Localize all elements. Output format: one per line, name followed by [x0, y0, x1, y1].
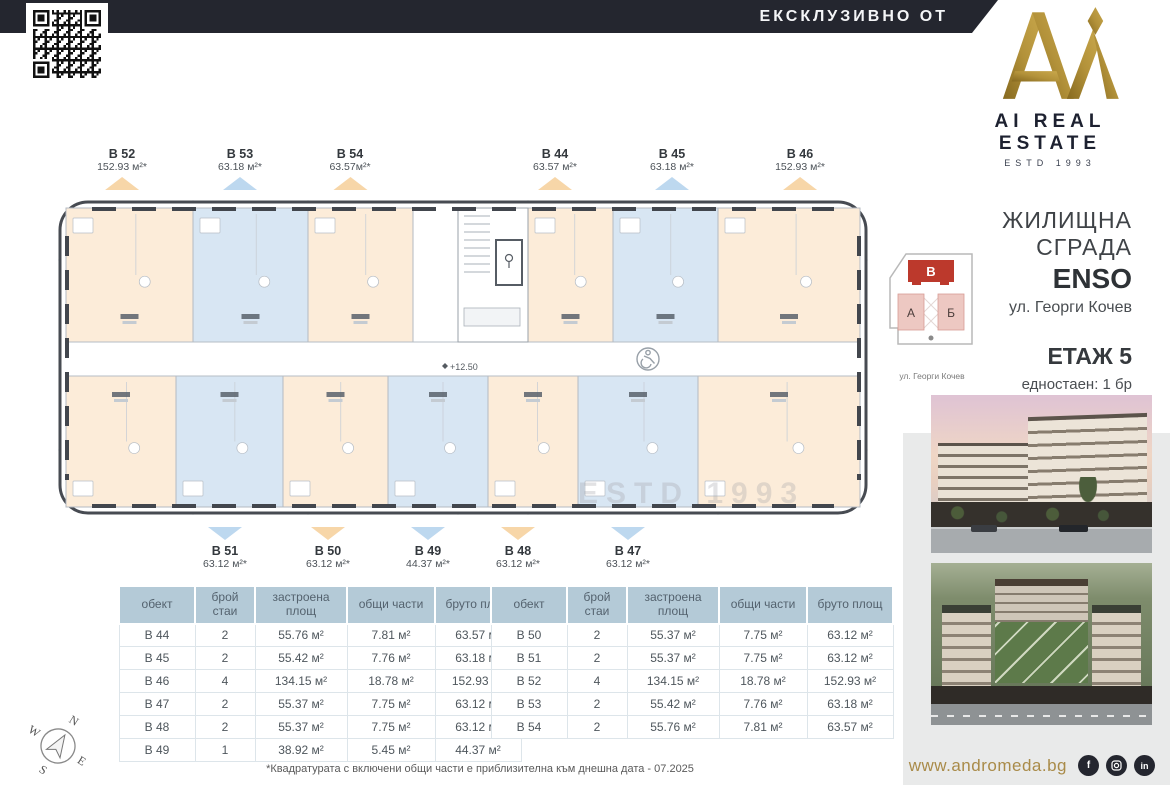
unit-В46: [718, 208, 860, 342]
table-cell: 7.75 м²: [347, 716, 435, 739]
table-cell: 5.45 м²: [347, 739, 435, 762]
table-cell: 7.75 м²: [347, 693, 435, 716]
table-cell: 7.81 м²: [347, 624, 435, 647]
table-cell: 2: [567, 716, 627, 739]
facebook-icon[interactable]: f: [1078, 755, 1099, 776]
table-cell: В 52: [491, 670, 567, 693]
compass-rose-icon: N E S W: [18, 708, 98, 785]
table-cell: 2: [567, 693, 627, 716]
table-cell: 55.37 м²: [627, 624, 719, 647]
table-cell: В 51: [491, 647, 567, 670]
instagram-icon[interactable]: [1106, 755, 1127, 776]
linkedin-icon[interactable]: in: [1134, 755, 1155, 776]
unit-В51: [176, 376, 283, 507]
render1-tree: [1077, 477, 1099, 505]
brand-name: AI REAL ESTATE: [940, 111, 1160, 155]
table-cell: 55.37 м²: [627, 647, 719, 670]
unit-marker-triangle: [411, 527, 445, 540]
svg-text:В: В: [926, 264, 935, 279]
unit-marker-triangle: [655, 177, 689, 190]
website-link[interactable]: www.andromeda.bg: [909, 756, 1067, 776]
render2-building-right: [1092, 605, 1141, 694]
column-header: застроена площ: [627, 586, 719, 624]
render2-building-left: [942, 605, 991, 694]
svg-text:W: W: [26, 722, 44, 740]
building-render-photo-1: [931, 395, 1152, 553]
render2-building-top: [995, 579, 1088, 622]
column-header: общи части: [347, 586, 435, 624]
ai-logo-mark-icon: [970, 2, 1130, 104]
table-cell: В 46: [119, 670, 195, 693]
apartment-label-В49: В 4944.37 м²*: [406, 527, 450, 570]
column-header: брой стаи: [567, 586, 627, 624]
table-cell: 63.12 м²: [807, 647, 893, 670]
table-cell: 4: [567, 670, 627, 693]
svg-text:+12.50: +12.50: [450, 362, 478, 372]
table-cell: В 49: [119, 739, 195, 762]
table-cell: 55.42 м²: [255, 647, 347, 670]
table-cell: 55.76 м²: [255, 624, 347, 647]
table-row: В 524134.15 м²18.78 м²152.93 м²: [491, 670, 893, 693]
table-cell: 2: [567, 624, 627, 647]
column-header: обект: [491, 586, 567, 624]
floor-plan-drawing: +12.50 ESTD 1993: [58, 200, 868, 515]
render2-road-markings: [931, 715, 1152, 717]
table-cell: В 50: [491, 624, 567, 647]
unit-В52: [66, 208, 193, 342]
site-plan-drawing: В А Б: [888, 252, 976, 364]
unit-marker-triangle: [611, 527, 645, 540]
table-row: В 44255.76 м²7.81 м²63.57 м²: [119, 624, 521, 647]
table-cell: 55.37 м²: [255, 716, 347, 739]
table-cell: В 54: [491, 716, 567, 739]
unit-В45: [613, 208, 718, 342]
apartment-label-В47: В 4763.12 м²*: [606, 527, 650, 570]
apartment-label-В44: В 4463.57 м²*: [533, 147, 577, 192]
agency-logo: AI REAL ESTATE ESTD 1993: [940, 2, 1160, 168]
table-cell: 63.18 м²: [807, 693, 893, 716]
table-cell: 134.15 м²: [255, 670, 347, 693]
qr-code-icon: [33, 10, 101, 78]
table-cell: 18.78 м²: [347, 670, 435, 693]
unit-В44: [528, 208, 613, 342]
table-cell: 7.75 м²: [719, 647, 807, 670]
table-cell: 44.37 м²: [435, 739, 521, 762]
table-cell: 2: [195, 647, 255, 670]
svg-text:N: N: [67, 712, 82, 729]
table-cell: В 44: [119, 624, 195, 647]
render2-garage-band: [931, 686, 1152, 704]
unit-marker-triangle: [105, 177, 139, 190]
unit-В52: [66, 376, 176, 507]
table-cell: 7.76 м²: [347, 647, 435, 670]
table-cell: В 48: [119, 716, 195, 739]
apartment-label-В51: В 5163.12 м²*: [203, 527, 247, 570]
table-cell: В 45: [119, 647, 195, 670]
apartment-label-В53: В 5363.18 м²*: [218, 147, 262, 192]
table-row: В 48255.37 м²7.75 м²63.12 м²: [119, 716, 521, 739]
table-cell: В 53: [491, 693, 567, 716]
table-cell: 152.93 м²: [807, 670, 893, 693]
table-cell: 2: [195, 624, 255, 647]
unit-marker-triangle: [501, 527, 535, 540]
table-cell: 1: [195, 739, 255, 762]
table-cell: 7.75 м²: [719, 624, 807, 647]
svg-text:E: E: [75, 753, 89, 769]
table-cell: 55.42 м²: [627, 693, 719, 716]
qr-code: [26, 3, 108, 85]
column-header: брой стаи: [195, 586, 255, 624]
table-cell: 18.78 м²: [719, 670, 807, 693]
table-row: В 54255.76 м²7.81 м²63.57 м²: [491, 716, 893, 739]
exclusive-ribbon: ЕКСКЛУЗИВНО ОТ: [0, 0, 998, 33]
table-cell: 7.76 м²: [719, 693, 807, 716]
table-cell: 2: [567, 647, 627, 670]
table-cell: 55.37 м²: [255, 693, 347, 716]
table-cell: 2: [195, 716, 255, 739]
estd-watermark: ESTD 1993: [578, 477, 805, 510]
floor-plan: +12.50 ESTD 1993: [58, 200, 868, 515]
site-marker-icon: [929, 336, 934, 341]
table-cell: 38.92 м²: [255, 739, 347, 762]
footnote: *Квадратурата с включени общи части е пр…: [0, 763, 960, 775]
table-cell: 55.76 м²: [627, 716, 719, 739]
table-row: В 45255.42 м²7.76 м²63.18 м²: [119, 647, 521, 670]
building-render-photo-2: [931, 563, 1152, 725]
site-plan-diagram: В А Б ул. Георги Кочев: [886, 252, 978, 381]
table-row: В 53255.42 м²7.76 м²63.18 м²: [491, 693, 893, 716]
render2-courtyard: [995, 612, 1088, 683]
flyer-page: ЕКСКЛУЗИВНО ОТ AI REAL ESTATE ESTD 1993: [0, 0, 1170, 785]
apartment-label-В52: В 52152.93 м²*: [97, 147, 147, 192]
street-label: ул. Георги Кочев: [886, 371, 978, 381]
table-row: В 50255.37 м²7.75 м²63.12 м²: [491, 624, 893, 647]
render1-building-left: [938, 443, 1033, 504]
apartment-label-В45: В 4563.18 м²*: [650, 147, 694, 192]
table-row: В 464134.15 м²18.78 м²152.93 м²: [119, 670, 521, 693]
unit-В53: [193, 208, 308, 342]
table-cell: 4: [195, 670, 255, 693]
unit-table-right: обектброй стаизастроена площобщи частибр…: [490, 585, 894, 739]
apartment-label-В50: В 5063.12 м²*: [306, 527, 350, 570]
table-cell: 2: [195, 693, 255, 716]
apartment-label-В48: В 4863.12 м²*: [496, 527, 540, 570]
unit-marker-triangle: [208, 527, 242, 540]
render1-car: [1059, 525, 1088, 533]
unit-В54: [308, 208, 413, 342]
render1-car: [971, 525, 998, 533]
unit-marker-triangle: [538, 177, 572, 190]
unit-marker-triangle: [333, 177, 367, 190]
apartment-label-В54: В 5463.57м²*: [329, 147, 370, 192]
unit-В50: [283, 376, 388, 507]
table-cell: В 47: [119, 693, 195, 716]
ribbon-label: ЕКСКЛУЗИВНО ОТ: [760, 8, 948, 26]
unit-marker-triangle: [223, 177, 257, 190]
column-header: бруто площ: [807, 586, 893, 624]
unit-marker-triangle: [311, 527, 345, 540]
table-row: В 49138.92 м²5.45 м²44.37 м²: [119, 739, 521, 762]
unit-В49: [388, 376, 488, 507]
column-header: застроена площ: [255, 586, 347, 624]
render1-podium: [931, 502, 1152, 529]
svg-text:S: S: [37, 762, 50, 777]
unit-table-left: обектброй стаизастроена площобщи частибр…: [118, 585, 522, 762]
table-cell: 63.12 м²: [807, 624, 893, 647]
render1-road: [931, 527, 1152, 553]
unit-marker-triangle: [783, 177, 817, 190]
table-cell: 7.81 м²: [719, 716, 807, 739]
apartment-label-В46: В 46152.93 м²*: [775, 147, 825, 192]
stair-core: [458, 208, 528, 342]
table-row: В 51255.37 м²7.75 м²63.12 м²: [491, 647, 893, 670]
unit-В48: [488, 376, 578, 507]
svg-text:А: А: [907, 306, 915, 320]
svg-text:Б: Б: [947, 306, 955, 320]
brand-estd: ESTD 1993: [940, 158, 1160, 168]
column-header: общи части: [719, 586, 807, 624]
table-cell: 63.57 м²: [807, 716, 893, 739]
table-cell: 134.15 м²: [627, 670, 719, 693]
table-row: В 47255.37 м²7.75 м²63.12 м²: [119, 693, 521, 716]
footer: www.andromeda.bg f in: [903, 755, 1155, 776]
column-header: обект: [119, 586, 195, 624]
